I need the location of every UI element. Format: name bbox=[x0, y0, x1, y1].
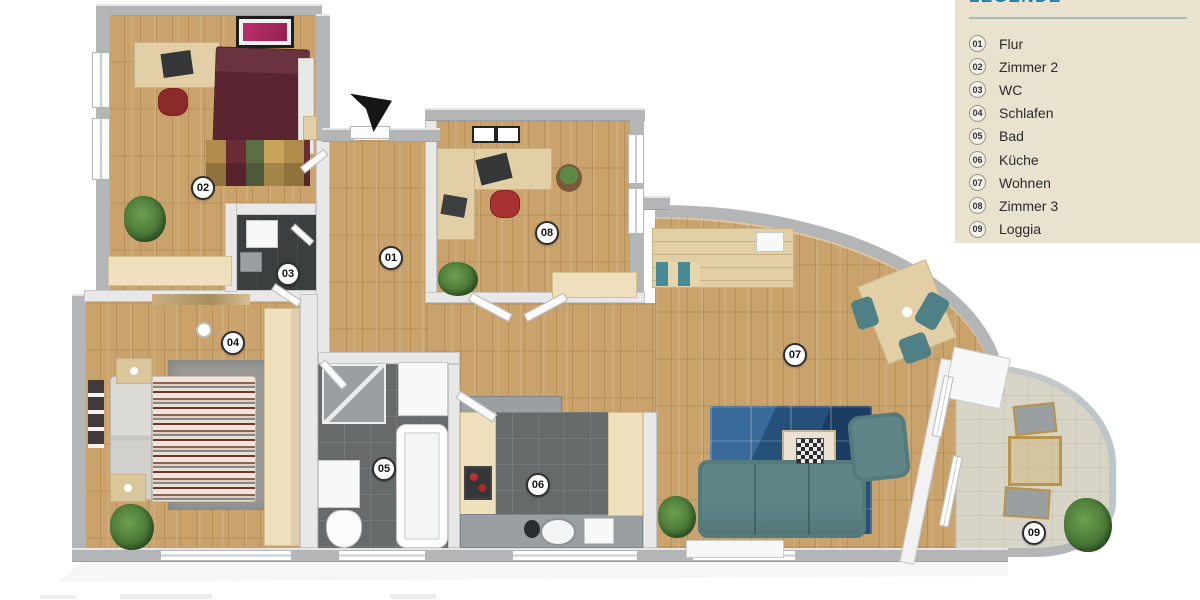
decor-box bbox=[756, 232, 784, 252]
legend-item: 03WC bbox=[969, 78, 1186, 101]
cabinet bbox=[240, 252, 262, 272]
patio-table bbox=[1008, 436, 1062, 486]
armchair bbox=[847, 411, 912, 483]
bathtub bbox=[396, 424, 448, 548]
chessboard bbox=[796, 438, 824, 464]
plant bbox=[658, 496, 696, 538]
legend-item-number: 01 bbox=[969, 35, 986, 52]
floorplan-stage: 010203040506070809 LEGENDE 01Flur02Zimme… bbox=[0, 0, 1200, 600]
wall bbox=[425, 115, 437, 303]
wall-art bbox=[236, 16, 294, 48]
wall bbox=[316, 14, 330, 140]
legend-item-label: Bad bbox=[999, 128, 1024, 144]
stove bbox=[464, 466, 492, 500]
sink bbox=[318, 460, 360, 508]
legend-item: 02Zimmer 2 bbox=[969, 55, 1186, 78]
window bbox=[512, 550, 638, 561]
wall bbox=[316, 140, 330, 362]
legend-item: 05Bad bbox=[969, 125, 1186, 148]
wall bbox=[225, 203, 316, 215]
window bbox=[628, 134, 644, 184]
slab-edge bbox=[58, 562, 1008, 582]
plant bbox=[124, 196, 166, 242]
bath-cabinet bbox=[398, 362, 448, 416]
plant bbox=[438, 262, 478, 296]
window bbox=[338, 550, 426, 561]
kitchen-sink bbox=[540, 518, 576, 546]
wall bbox=[96, 4, 322, 16]
wall bbox=[448, 364, 460, 548]
nightstand bbox=[303, 116, 317, 140]
laptop bbox=[160, 50, 193, 78]
bottom-artifact bbox=[390, 594, 436, 599]
plant-stool bbox=[556, 164, 582, 192]
ceiling-lamp bbox=[196, 322, 212, 338]
desk bbox=[437, 148, 475, 240]
plant bbox=[1064, 498, 1112, 552]
bed-double bbox=[152, 376, 256, 502]
legend-item-label: Flur bbox=[999, 36, 1023, 52]
wall bbox=[425, 108, 645, 121]
office-chair bbox=[158, 88, 188, 116]
legend-item-label: Zimmer 2 bbox=[999, 59, 1058, 75]
legend-item-number: 06 bbox=[969, 151, 986, 168]
legend-item-number: 09 bbox=[969, 221, 986, 238]
legend-item-label: Zimmer 3 bbox=[999, 198, 1058, 214]
legend-item-number: 03 bbox=[969, 81, 986, 98]
legend-title: LEGENDE bbox=[969, 0, 1186, 7]
legend-panel: LEGENDE 01Flur02Zimmer 203WC04Schlafen05… bbox=[955, 0, 1200, 243]
wall bbox=[388, 128, 440, 142]
toilet bbox=[326, 510, 362, 548]
legend-divider bbox=[969, 17, 1187, 19]
floor-hall bbox=[330, 140, 428, 354]
sink bbox=[246, 220, 278, 248]
legend-item-number: 02 bbox=[969, 58, 986, 75]
wall bbox=[644, 196, 670, 210]
wall bbox=[643, 412, 657, 548]
wall bbox=[72, 294, 86, 554]
legend-item-label: WC bbox=[999, 82, 1022, 98]
legend-item-label: Schlafen bbox=[999, 105, 1053, 121]
sofa bbox=[698, 460, 866, 538]
legend-item: 07Wohnen bbox=[969, 171, 1186, 194]
window bbox=[92, 52, 110, 108]
patio-chair bbox=[1003, 486, 1051, 519]
window bbox=[92, 118, 110, 180]
patio-chair bbox=[1013, 402, 1058, 436]
legend-item-number: 05 bbox=[969, 128, 986, 145]
nightstand bbox=[116, 358, 152, 384]
legend-item-number: 07 bbox=[969, 174, 986, 191]
patch-rug bbox=[206, 140, 310, 186]
legend-item: 06Küche bbox=[969, 148, 1186, 171]
sideboard bbox=[108, 256, 232, 286]
kitchen-counter bbox=[608, 412, 643, 516]
office-chair bbox=[490, 190, 520, 218]
legend-item: 09Loggia bbox=[969, 218, 1186, 241]
window bbox=[160, 550, 292, 561]
plant bbox=[110, 504, 154, 550]
wall-art bbox=[152, 294, 250, 305]
kitchen-board bbox=[584, 518, 614, 544]
drawer-unit bbox=[656, 262, 700, 286]
bottom-artifact bbox=[120, 594, 212, 599]
wall-art bbox=[472, 126, 520, 143]
typewriter bbox=[440, 194, 467, 218]
legend-item: 08Zimmer 3 bbox=[969, 194, 1186, 217]
picture-frames bbox=[88, 380, 104, 448]
legend-item: 01Flur bbox=[969, 32, 1186, 55]
legend-item-label: Loggia bbox=[999, 221, 1041, 237]
wardrobe bbox=[264, 308, 300, 546]
window bbox=[628, 188, 644, 234]
legend-item-number: 08 bbox=[969, 197, 986, 214]
legend-item-label: Küche bbox=[999, 152, 1039, 168]
nightstand bbox=[110, 474, 146, 502]
legend-list: 01Flur02Zimmer 203WC04Schlafen05Bad06Küc… bbox=[969, 32, 1186, 241]
bottom-artifact bbox=[40, 595, 76, 599]
tv-lowboard bbox=[686, 540, 784, 558]
wall bbox=[300, 294, 318, 548]
entrance-door bbox=[350, 126, 390, 139]
legend-item-label: Wohnen bbox=[999, 175, 1051, 191]
legend-item-number: 04 bbox=[969, 105, 986, 122]
kettle bbox=[524, 520, 540, 538]
legend-item: 04Schlafen bbox=[969, 102, 1186, 125]
kitchen-counter bbox=[460, 412, 496, 516]
